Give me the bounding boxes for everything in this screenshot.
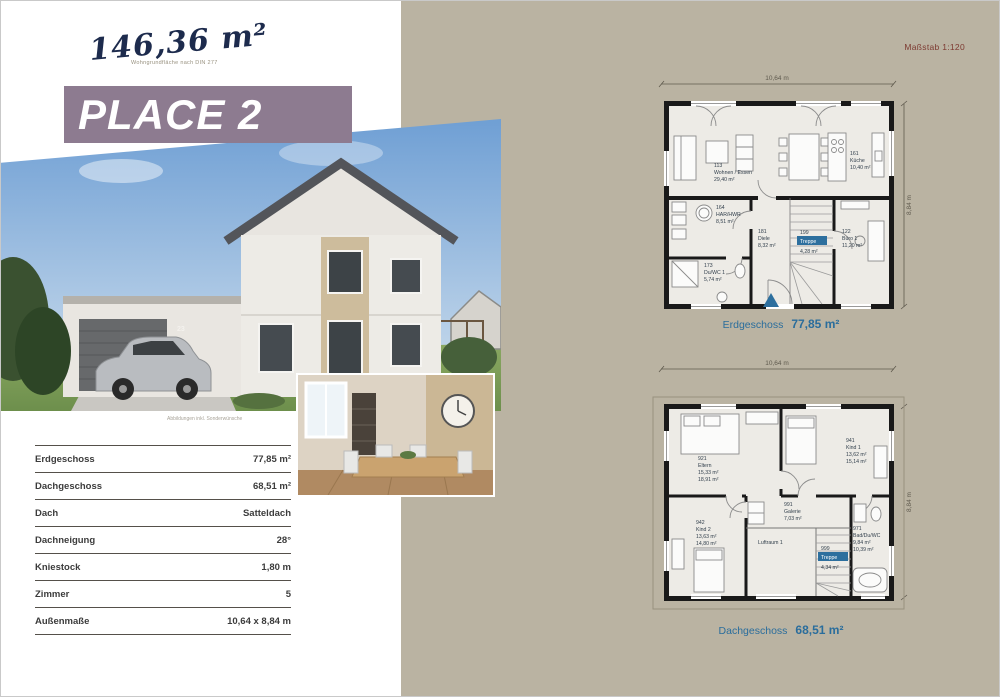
dimension-width-label: 10,64 m — [765, 360, 789, 367]
spec-label: Zimmer — [35, 589, 69, 600]
floorplan-erdgeschoss: 10,64 m 8,84 m — [646, 71, 926, 321]
svg-text:9,84 m²: 9,84 m² — [853, 540, 871, 546]
svg-text:Treppe: Treppe — [800, 239, 816, 245]
svg-text:113: 113 — [714, 163, 722, 169]
spec-value: 5 — [286, 589, 291, 600]
svg-text:15,33 m²: 15,33 m² — [698, 470, 719, 476]
dimension-width-label: 10,64 m — [765, 75, 789, 82]
svg-text:Galerie: Galerie — [784, 509, 801, 515]
svg-text:10,39 m²: 10,39 m² — [853, 547, 874, 553]
spec-label: Dach — [35, 508, 58, 519]
window — [328, 251, 362, 293]
spec-label: Dachneigung — [35, 535, 95, 546]
spec-label: Kniestock — [35, 562, 80, 573]
svg-text:161: 161 — [850, 151, 859, 157]
svg-text:942: 942 — [696, 520, 705, 526]
cloud — [279, 140, 383, 166]
svg-text:14,80 m²: 14,80 m² — [696, 541, 717, 547]
window — [391, 324, 421, 366]
svg-text:Kind 1: Kind 1 — [846, 445, 861, 451]
spec-label: Außenmaße — [35, 616, 89, 627]
window — [391, 259, 421, 293]
svg-text:8,32 m²: 8,32 m² — [758, 243, 776, 249]
svg-text:15,14 m²: 15,14 m² — [846, 459, 867, 465]
floorplan-dachgeschoss: 10,64 m 8,84 m — [646, 356, 926, 616]
house-number: 23 — [177, 326, 185, 333]
floor-area: 77,85 m² — [791, 317, 839, 331]
svg-text:Eltern: Eltern — [698, 463, 712, 469]
svg-text:921: 921 — [698, 456, 707, 462]
table-row: Kniestock1,80 m — [35, 554, 291, 581]
svg-text:10,40 m²: 10,40 m² — [850, 165, 871, 171]
spec-table: Erdgeschoss77,85 m² Dachgeschoss68,51 m²… — [35, 445, 291, 635]
svg-text:122: 122 — [842, 229, 851, 235]
svg-text:Büro 1: Büro 1 — [842, 236, 857, 242]
table-row: Außenmaße10,64 x 8,84 m — [35, 608, 291, 635]
svg-text:941: 941 — [846, 438, 855, 444]
dimension-height-label: 8,84 m — [906, 492, 913, 512]
svg-text:29,40 m²: 29,40 m² — [714, 177, 735, 183]
spec-value: 1,80 m — [261, 562, 291, 573]
svg-text:4,28 m²: 4,28 m² — [800, 249, 818, 255]
erdgeschoss-caption: Erdgeschoss77,85 m² — [656, 315, 906, 333]
svg-text:13,63 m²: 13,63 m² — [696, 534, 717, 540]
svg-text:11,20 m²: 11,20 m² — [842, 243, 862, 249]
cloud — [79, 159, 163, 183]
svg-text:Du/WC 1: Du/WC 1 — [704, 270, 725, 276]
table-row: Erdgeschoss77,85 m² — [35, 446, 291, 473]
title-banner: PLACE 2 — [64, 86, 352, 143]
svg-text:173: 173 — [704, 263, 713, 269]
house-photo: 23 — [1, 119, 501, 411]
spec-label: Dachgeschoss — [35, 481, 102, 492]
svg-text:Küche: Küche — [850, 158, 865, 164]
svg-text:971: 971 — [853, 526, 862, 532]
svg-text:4,34 m²: 4,34 m² — [821, 565, 839, 571]
svg-text:991: 991 — [784, 502, 793, 508]
area-note: Wohngrundfläche nach DIN 277 — [131, 60, 218, 66]
svg-text:18,91 m²: 18,91 m² — [698, 477, 719, 483]
table-row: Dachgeschoss68,51 m² — [35, 473, 291, 500]
svg-text:181: 181 — [758, 229, 767, 235]
svg-text:164: 164 — [716, 205, 725, 211]
svg-text:7,03 m²: 7,03 m² — [784, 516, 802, 522]
svg-text:5,74 m²: 5,74 m² — [704, 277, 722, 283]
interior-photo — [296, 373, 495, 497]
table-row: DachSatteldach — [35, 500, 291, 527]
spec-value: 77,85 m² — [253, 454, 291, 465]
svg-text:999: 999 — [821, 546, 830, 552]
svg-text:Wohnen / Essen: Wohnen / Essen — [714, 170, 752, 176]
room-label-luftraum: Luftraum 1 — [758, 540, 783, 546]
floor-name: Dachgeschoss — [719, 625, 788, 637]
window — [328, 321, 362, 377]
svg-text:13,62 m²: 13,62 m² — [846, 452, 867, 458]
svg-text:Treppe: Treppe — [821, 555, 837, 561]
shelf-unit — [352, 393, 376, 455]
dimension-height-label: 8,84 m — [906, 195, 913, 215]
dachgeschoss-caption: Dachgeschoss68,51 m² — [656, 621, 906, 639]
spec-value: Satteldach — [243, 508, 291, 519]
page-title: PLACE 2 — [64, 86, 352, 143]
table-row: Zimmer5 — [35, 581, 291, 608]
floor-area: 68,51 m² — [795, 623, 843, 637]
svg-text:Diele: Diele — [758, 236, 770, 242]
svg-text:199: 199 — [800, 230, 809, 236]
spec-value: 10,64 x 8,84 m — [227, 616, 291, 627]
table-row: Dachneigung28° — [35, 527, 291, 554]
window — [259, 324, 293, 372]
svg-text:Bad/Du/WC: Bad/Du/WC — [853, 533, 881, 539]
spec-label: Erdgeschoss — [35, 454, 95, 465]
scale-label: Maßstab 1:120 — [904, 42, 965, 52]
floor-name: Erdgeschoss — [723, 319, 784, 331]
svg-text:Kind 2: Kind 2 — [696, 527, 711, 533]
svg-text:HAR/HWR: HAR/HWR — [716, 212, 741, 218]
svg-text:8,51 m²: 8,51 m² — [716, 219, 734, 225]
photo-disclaimer: Abbildungen inkl. Sonderwünsche — [167, 416, 242, 422]
spec-value: 68,51 m² — [253, 481, 291, 492]
brochure-page: 146,36 m² Wohngrundfläche nach DIN 277 P… — [0, 0, 1000, 697]
spec-value: 28° — [277, 535, 291, 546]
